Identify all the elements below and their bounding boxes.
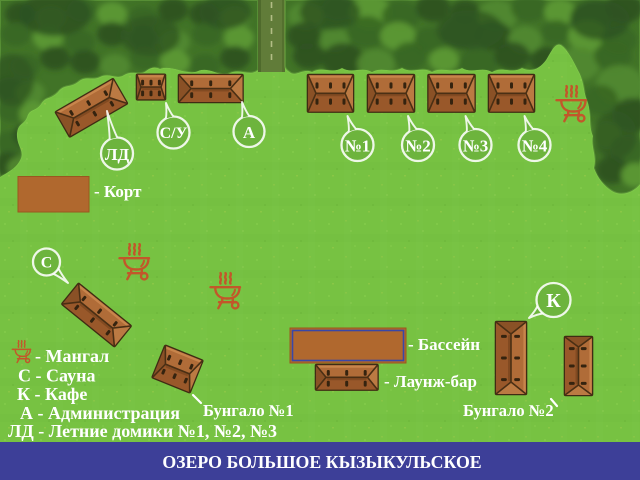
svg-text:С: С — [41, 255, 53, 272]
svg-text:С - Сауна: С - Сауна — [18, 366, 95, 386]
svg-text:К: К — [546, 290, 561, 312]
svg-text:К - Кафе: К - Кафе — [17, 384, 87, 404]
svg-text:- Корт: - Корт — [94, 182, 142, 201]
svg-text:ОЗЕРО БОЛЬШОЕ КЫЗЫКУЛЬСКОЕ: ОЗЕРО БОЛЬШОЕ КЫЗЫКУЛЬСКОЕ — [162, 452, 481, 472]
svg-text:№4: №4 — [522, 137, 548, 156]
svg-text:ЛД: ЛД — [105, 145, 130, 164]
svg-text:С/У: С/У — [160, 125, 188, 142]
svg-text:А - Администрация: А - Администрация — [20, 403, 180, 423]
svg-text:- Мангал: - Мангал — [35, 346, 109, 366]
svg-text:- Лаунж-бар: - Лаунж-бар — [384, 372, 477, 391]
svg-text:Бунгало №1: Бунгало №1 — [203, 401, 294, 420]
svg-text:А: А — [243, 123, 256, 142]
svg-text:- Бассейн: - Бассейн — [408, 335, 480, 354]
svg-text:ЛД - Летние домики №1, №2, №3: ЛД - Летние домики №1, №2, №3 — [8, 421, 277, 441]
svg-text:№3: №3 — [463, 137, 489, 156]
svg-text:№2: №2 — [405, 137, 431, 156]
svg-text:Бунгало №2: Бунгало №2 — [463, 401, 554, 420]
svg-text:№1: №1 — [345, 137, 371, 156]
